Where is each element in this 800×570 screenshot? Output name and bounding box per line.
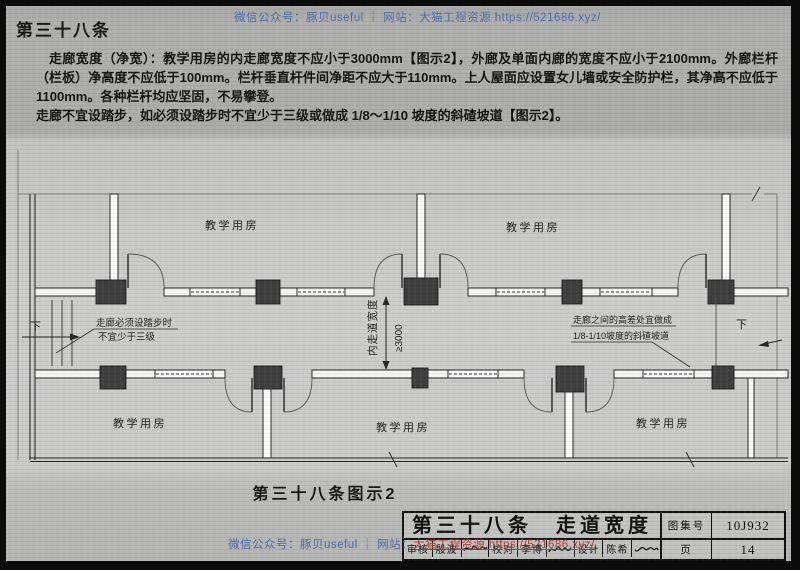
paragraph-1: 走廊宽度（净宽）：教学用房的内走廊宽度不应小于3000mm【图示2】，外廊及单面… [36,49,778,106]
paragraph-2: 走廊不宜设踏步，如必须设踏步时不宜少于三级或做成 1/8～1/10 坡度的斜碴坡… [36,106,778,125]
designer-name: 陈希 [603,540,632,557]
watermark-bottom: 微信公众号：豚贝useful ｜ 网站：大猫工程资源 https://52168… [228,536,595,552]
corridor-steps [52,300,72,366]
room-label-bottom-center: 教学用房 [376,420,430,434]
room-label-bottom-right: 教学用房 [636,416,690,430]
svg-text:下: 下 [30,321,41,333]
down-arrow-left: 下 [22,321,80,341]
dimension-label: 内走道宽度 [366,299,379,357]
page-number-label: 页 [662,540,712,559]
watermark-bottom-red: 大猫工程资源 https://521686.xyz/ [413,539,595,551]
room-label-top-right: 教学用房 [506,220,560,234]
boundary-lines [18,150,777,460]
page-number-value: 14 [712,540,784,559]
article-heading: 第三十八条 [16,16,111,41]
title-block-side: 图集号 10J932 页 14 [662,513,784,559]
atlas-number-row: 图集号 10J932 [662,513,784,540]
dimension-value: ≥3000 [394,324,405,352]
break-mark-bottom-2 [686,452,694,467]
scanned-document-page: 第三十八条 微信公众号：豚贝useful ｜ 网站：大猫工程资源 https:/… [0,0,800,570]
svg-text:下: 下 [736,319,747,331]
break-mark-bottom-1 [389,452,397,467]
figure-caption: 第三十八条图示2 [200,480,450,504]
room-label-top-left: 教学用房 [205,218,259,232]
note-steps: 走廊必须设踏步时 不宜少于三级 [56,317,178,353]
svg-text:走廊之间的高差处宜做成: 走廊之间的高差处宜做成 [573,314,672,325]
atlas-number-label: 图集号 [662,513,712,538]
break-mark-top [752,187,760,201]
article-body: 走廊宽度（净宽）：教学用房的内走廊宽度不应小于3000mm【图示2】，外廊及单面… [36,49,778,125]
svg-text:走廊必须设踏步时: 走廊必须设踏步时 [96,317,173,329]
atlas-number-value: 10J932 [712,513,784,538]
svg-text:1/8-1/10坡度的斜碴坡道: 1/8-1/10坡度的斜碴坡道 [573,330,669,341]
corridor-bottom-wall [35,370,788,378]
watermark-bottom-blue: 微信公众号：豚贝useful ｜ 网站： [228,539,413,551]
designer-signature [632,540,660,557]
floor-plan-drawing: 下 下 内走道宽度 ≥3000 走廊必须设踏步时 不宜少于三级 [0,140,800,485]
watermark-top: 微信公众号：豚贝useful ｜ 网站：大猫工程资源 https://52168… [234,9,601,25]
note-ramp: 走廊之间的高差处宜做成 1/8-1/10坡度的斜碴坡道 [571,314,690,367]
down-arrow-right: 下 [736,319,782,347]
room-label-bottom-left: 教学用房 [113,416,167,430]
svg-text:不宜少于三级: 不宜少于三级 [98,331,156,343]
corridor-width-dimension: 内走道宽度 ≥3000 [366,296,405,370]
page-number-row: 页 14 [662,540,784,559]
